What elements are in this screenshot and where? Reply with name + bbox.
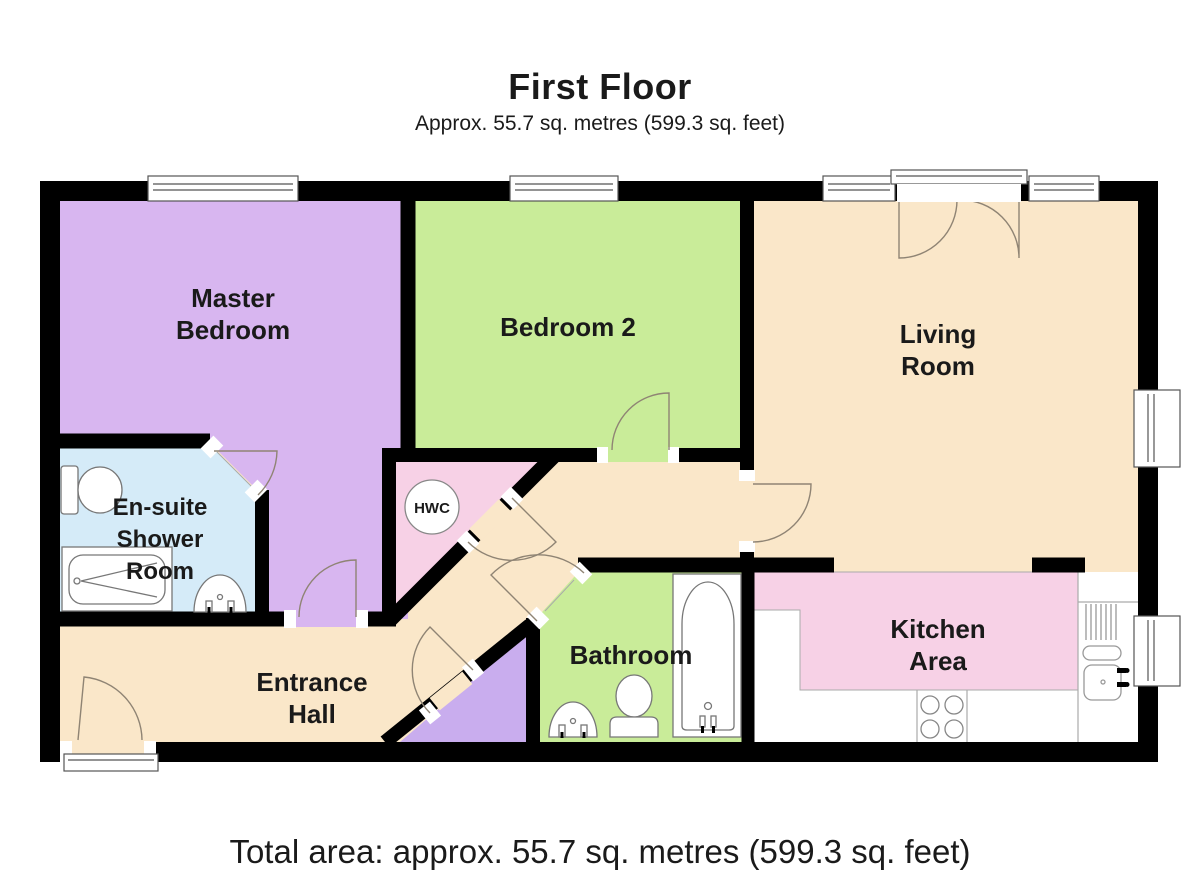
label-kitchen-1: Kitchen bbox=[890, 614, 985, 644]
label-entrance-hall-1: Entrance bbox=[256, 667, 367, 697]
total-area-text: Total area: approx. 55.7 sq. metres (599… bbox=[0, 833, 1200, 871]
window-master-bedroom bbox=[148, 176, 298, 201]
label-ensuite-3: Room bbox=[126, 558, 194, 585]
label-bathroom: Bathroom bbox=[570, 640, 693, 670]
window-bedroom-2 bbox=[510, 176, 618, 201]
label-bedroom-2: Bedroom 2 bbox=[500, 312, 636, 342]
label-master-bedroom-2: Bedroom bbox=[176, 315, 290, 345]
window-kitchen bbox=[1134, 616, 1180, 686]
label-living-room-1: Living bbox=[900, 319, 977, 349]
label-entrance-hall-2: Hall bbox=[288, 699, 336, 729]
french-door-frame bbox=[891, 170, 1027, 202]
front-door-threshold bbox=[64, 754, 158, 771]
label-kitchen-2: Area bbox=[909, 646, 967, 676]
label-master-bedroom-1: Master bbox=[191, 283, 275, 313]
label-ensuite-2: Shower bbox=[117, 526, 204, 553]
label-hwc: HWC bbox=[414, 500, 450, 517]
label-living-room-2: Room bbox=[901, 351, 975, 381]
window-living-side bbox=[1134, 390, 1180, 467]
floorplan-page: First Floor Approx. 55.7 sq. metres (599… bbox=[0, 0, 1200, 873]
window-living-right bbox=[1029, 176, 1099, 201]
label-ensuite-1: En-suite bbox=[113, 494, 208, 521]
window-living-left bbox=[823, 176, 895, 201]
floorplan-drawing: Master Bedroom Bedroom 2 Living Room En-… bbox=[0, 0, 1200, 873]
